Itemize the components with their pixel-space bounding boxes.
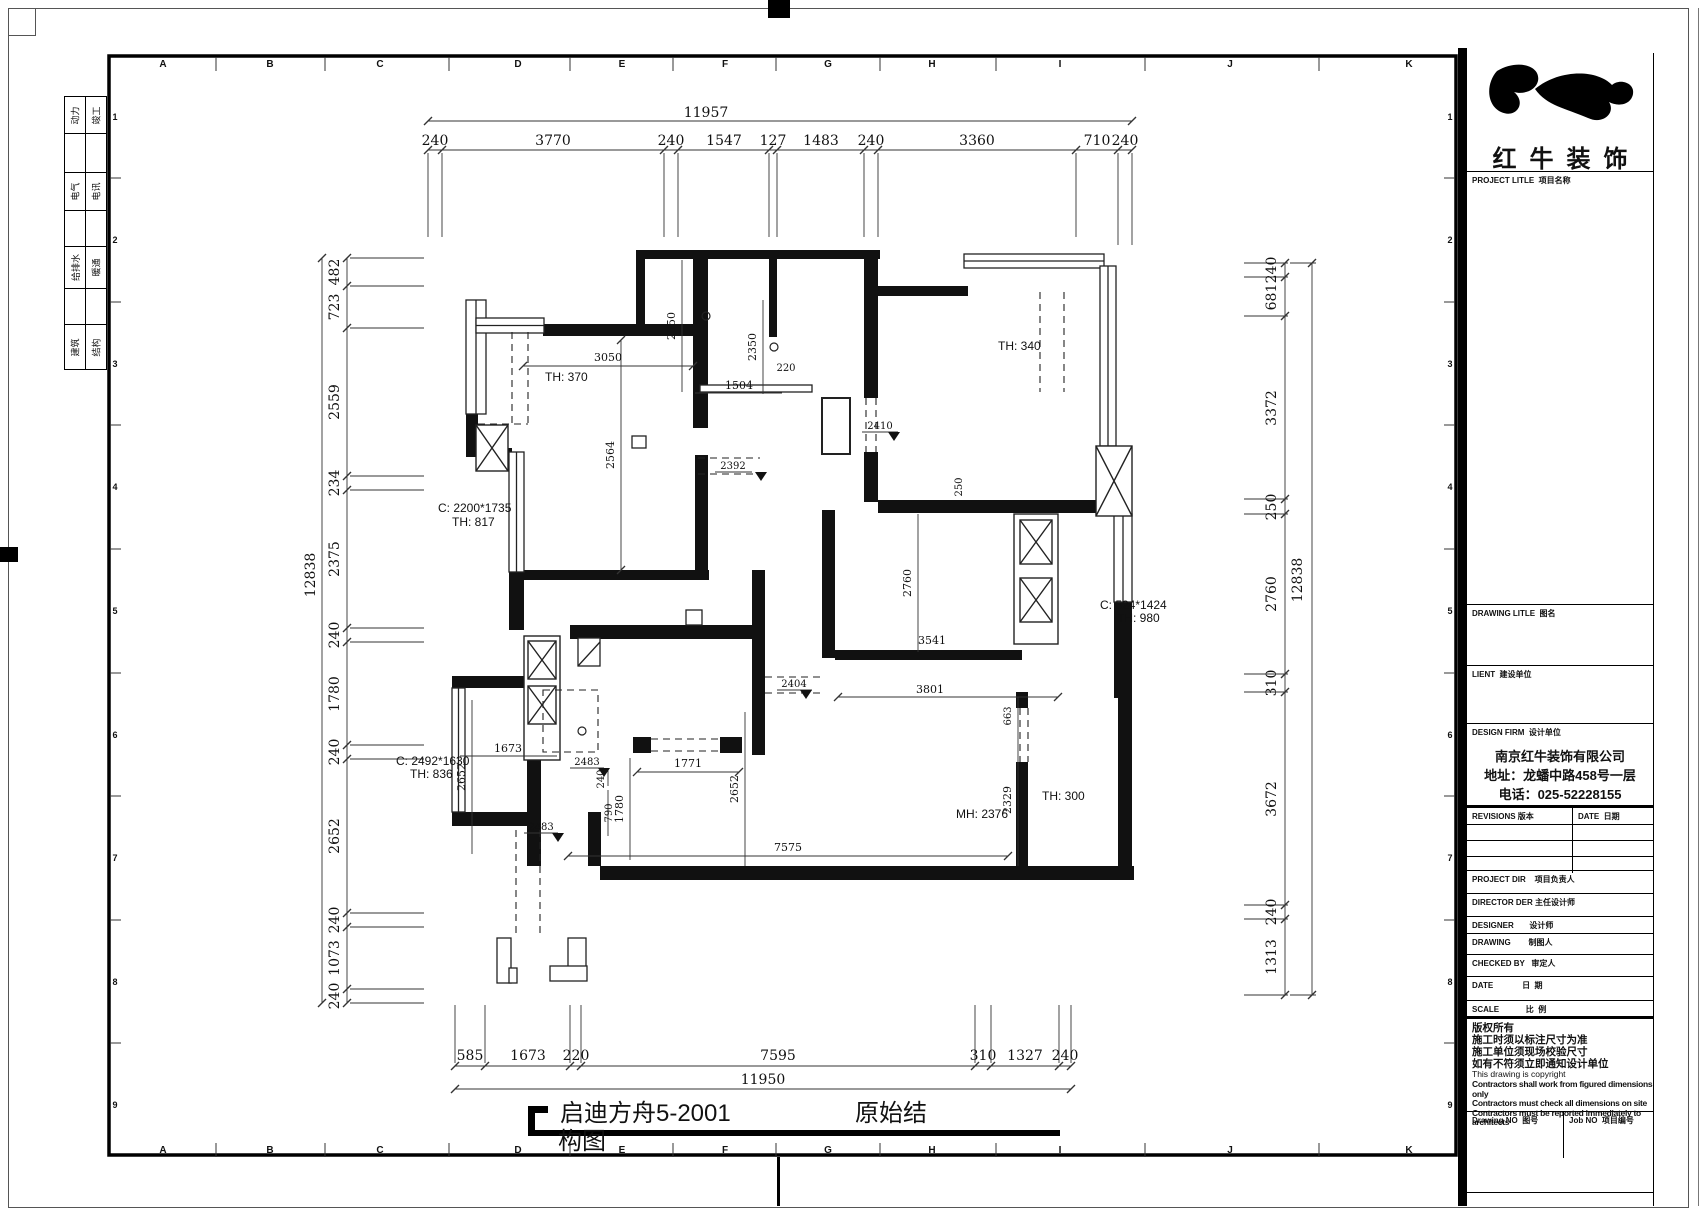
dim-total-top: 11957 — [684, 105, 729, 121]
grid-number: 7 — [112, 853, 117, 863]
dim: 710 — [1084, 133, 1111, 149]
design-firm-box: DESIGN FIRM 设计单位 南京红牛装饰有限公司 地址：龙蟠中路458号一… — [1467, 724, 1653, 806]
grid-letter: G — [824, 1145, 832, 1156]
stamp-label: 结构 — [89, 338, 102, 356]
grid-letter: A — [159, 59, 166, 70]
stamp-cell: 电讯 — [86, 173, 106, 210]
grid-number: 6 — [1447, 730, 1452, 740]
label-c2200: C: 2200*1735 — [438, 501, 512, 515]
grid-number: 7 — [1447, 853, 1452, 863]
plan-title-wrap: 构图 — [558, 1128, 606, 1155]
dim: 1673 — [494, 742, 522, 755]
dim: 2410 — [867, 421, 892, 432]
label-th370: TH: 370 — [545, 370, 588, 384]
interior-dim-lines — [460, 260, 1062, 866]
stamp-row: 电气 电讯 — [65, 173, 106, 211]
dim: 1771 — [674, 757, 702, 770]
grid-number: 1 — [112, 112, 117, 122]
grid-number: 2 — [1447, 235, 1452, 245]
dim: 2483 — [574, 757, 599, 768]
dim: 240 — [1264, 257, 1280, 284]
stamp-row-empty — [65, 134, 106, 173]
revisions-table: REVISIONS 版本 DATE 日期 — [1467, 806, 1653, 871]
dim: 240 — [327, 983, 343, 1010]
grid-number: 5 — [1447, 606, 1452, 616]
dim: 681 — [1264, 284, 1280, 311]
dim: 3770 — [535, 133, 571, 149]
revision-row-empty — [1467, 825, 1653, 841]
label-th836: TH: 836 — [410, 767, 453, 781]
grid-letter: H — [928, 1145, 935, 1156]
scale-row-label: SCALE 比 例 — [1467, 1001, 1653, 1015]
dim: 2652 — [327, 818, 343, 854]
grid-letter: B — [266, 1145, 273, 1156]
grid-letter: D — [514, 1145, 521, 1156]
grid-letter: J — [1227, 1145, 1233, 1156]
corner-registration-box — [8, 8, 36, 36]
drawing-title-box: DRAWING LITLE 图名 — [1467, 605, 1653, 666]
brand-name: 红牛装饰 — [1467, 139, 1653, 174]
dim: 3372 — [1264, 390, 1280, 426]
dim: 1504 — [725, 379, 753, 392]
dim: 663 — [1003, 706, 1014, 725]
stamp-cell — [65, 134, 86, 172]
stamp-label: 动力 — [68, 106, 81, 124]
grid-letter: E — [619, 59, 626, 70]
grid-letter: F — [722, 59, 728, 70]
stamp-cell — [86, 289, 106, 324]
dim: 790 — [604, 803, 615, 822]
dim: 127 — [760, 133, 787, 149]
grid-letter: D — [514, 59, 521, 70]
grid-numbers-left: 1 2 3 4 5 6 7 8 9 — [112, 112, 117, 1110]
job-no-label: Job NO 项目编号 — [1564, 1112, 1638, 1126]
drawing-frame — [109, 56, 1456, 1155]
director-row: DIRECTOR DER 主任设计师 — [1467, 894, 1653, 917]
dimension-text-top: 11957 240 3770 240 1547 127 1483 240 336… — [422, 105, 1139, 149]
grid-letter: E — [619, 1145, 626, 1156]
stamp-cell: 建筑 — [65, 325, 86, 369]
grid-letter: J — [1227, 59, 1233, 70]
project-dir-label: PROJECT DIR 项目负责人 — [1467, 871, 1653, 885]
dim: 2404 — [781, 679, 806, 690]
scale-row: SCALE 比 例 — [1467, 1001, 1653, 1017]
label-th980: TH: 980 — [1117, 611, 1160, 625]
drawing-by-label: DRAWING 制图人 — [1467, 934, 1653, 948]
revisions-label: REVISIONS 版本 — [1467, 808, 1538, 822]
grid-number: 4 — [112, 482, 117, 492]
dim: 240 — [596, 769, 607, 788]
dim: 2350 — [746, 333, 759, 361]
dim: 1327 — [1007, 1048, 1043, 1064]
stamp-cell — [86, 134, 106, 172]
grid-letter: K — [1405, 1145, 1413, 1156]
grid-letter: H — [928, 59, 935, 70]
grid-letter: I — [1059, 1145, 1062, 1156]
designer-label: DESIGNER 设计师 — [1467, 917, 1653, 931]
checked-by-row: CHECKED BY 审定人 — [1467, 955, 1653, 977]
dim-total-right: 12838 — [1290, 558, 1306, 603]
dim: 240 — [422, 133, 449, 149]
door-circles — [578, 312, 778, 735]
grid-letter: B — [266, 59, 273, 70]
project-dir-row: PROJECT DIR 项目负责人 — [1467, 871, 1653, 894]
stamp-label: 建筑 — [68, 338, 81, 356]
title-block: 红牛装饰 PROJECT LITLE 项目名称 DRAWING LITLE 图名… — [1467, 53, 1654, 1158]
dimension-text-left: 482 723 2559 234 2375 240 1780 240 2652 … — [303, 259, 343, 1010]
grid-number: 3 — [1447, 359, 1452, 369]
stamp-cell: 暖通 — [86, 247, 106, 288]
grid-letter: F — [722, 1145, 728, 1156]
dim: 310 — [1264, 670, 1280, 697]
drawing-number-box: Drawing NO 图号 Job NO 项目编号 — [1467, 1112, 1653, 1158]
label-th340: TH: 340 — [998, 339, 1041, 353]
firm-name: 南京红牛装饰有限公司 — [1467, 748, 1653, 767]
dim: 2652 — [728, 775, 741, 803]
dim: 240 — [1052, 1048, 1079, 1064]
registration-mark-bottom — [777, 1157, 780, 1206]
date-col-label: DATE 日期 — [1573, 808, 1624, 822]
client-box: LIENT 建设单位 — [1467, 666, 1653, 724]
drawing-by-row: DRAWING 制图人 — [1467, 934, 1653, 955]
note-line: 施工时须以标注尺寸为准 — [1472, 1035, 1653, 1047]
stamp-label: 电讯 — [89, 183, 102, 201]
grid-number: 2 — [112, 235, 117, 245]
client-label: LIENT 建设单位 — [1467, 666, 1653, 680]
firm-phone: 电话：025-52228155 — [1467, 786, 1653, 805]
cad-floor-plan-page: { "stamps": { "rows": [ {"a": "动力", "b":… — [0, 0, 1708, 1214]
dim: 310 — [970, 1048, 997, 1064]
firm-address: 地址：龙蟠中路458号一层 — [1467, 767, 1653, 786]
dim: 7595 — [760, 1048, 796, 1064]
dim: 1780 — [327, 676, 343, 712]
note-line: Contractors shall work from figured dime… — [1472, 1080, 1653, 1099]
dim: 1073 — [327, 940, 343, 976]
grid-letter: K — [1405, 59, 1413, 70]
grid-number: 3 — [112, 359, 117, 369]
grid-number: 8 — [1447, 977, 1452, 987]
dim: 482 — [327, 259, 343, 286]
label-th817: TH: 817 — [452, 515, 495, 529]
checked-by-label: CHECKED BY 审定人 — [1467, 955, 1653, 969]
dim: 240 — [658, 133, 685, 149]
dim: 723 — [327, 294, 343, 321]
stamp-label: 电气 — [68, 183, 81, 201]
stamp-cell: 电气 — [65, 173, 86, 210]
stamp-row: 建筑 结构 — [65, 325, 106, 369]
stamp-row-empty — [65, 211, 106, 246]
copyright-notes-box: 版权所有 施工时须以标注尺寸为准 施工单位须现场校验尺寸 如有不符须立即通知设计… — [1467, 1017, 1653, 1112]
dim: 2559 — [327, 384, 343, 420]
dim: 240 — [327, 622, 343, 649]
dim: 250 — [1264, 494, 1280, 521]
dim: 7575 — [774, 841, 802, 854]
titleblock-footer-row2 — [1467, 1192, 1654, 1206]
grid-number: 8 — [112, 977, 117, 987]
date-row-label: DATE 日 期 — [1467, 977, 1653, 991]
dim: 220 — [776, 363, 795, 374]
director-label: DIRECTOR DER 主任设计师 — [1467, 894, 1653, 908]
plan-title-name: 启迪方舟5-2001 — [560, 1100, 731, 1127]
dim: 3801 — [916, 683, 944, 696]
dim-total-bottom: 11950 — [741, 1072, 786, 1088]
revisions-header: REVISIONS 版本 DATE 日期 — [1467, 808, 1653, 825]
dim: 2564 — [604, 441, 617, 469]
dim: 2392 — [720, 461, 745, 472]
project-title-label: PROJECT LITLE 项目名称 — [1467, 172, 1653, 186]
titleblock-footer-row — [1467, 1158, 1654, 1193]
stamp-row: 给排水 暖通 — [65, 247, 106, 289]
grid-letter: A — [159, 1145, 166, 1156]
dim: 585 — [457, 1048, 484, 1064]
grid-number: 6 — [112, 730, 117, 740]
dim: 2760 — [901, 569, 914, 597]
stamp-cell — [86, 211, 106, 245]
grid-letter: C — [376, 1145, 383, 1156]
dim: 1483 — [803, 133, 839, 149]
column-x-boxes — [476, 425, 1132, 760]
dim: 3672 — [1264, 781, 1280, 817]
page-edge-line — [1698, 8, 1699, 1206]
dim: 2760 — [1264, 576, 1280, 612]
design-firm-label: DESIGN FIRM 设计单位 — [1467, 724, 1653, 738]
stamp-row-empty — [65, 289, 106, 325]
grid-letters-top: A B C D E F G H I J K — [159, 59, 1413, 70]
date-row: DATE 日 期 — [1467, 977, 1653, 1001]
plan-title-suffix: 原始结 — [855, 1100, 927, 1127]
dim: 220 — [563, 1048, 590, 1064]
grid-letter: I — [1059, 59, 1062, 70]
dim: 2375 — [327, 541, 343, 577]
stamp-cell — [65, 211, 86, 245]
dim: 1313 — [1264, 939, 1280, 975]
dim: 2483 — [528, 822, 553, 833]
stamp-cell — [65, 289, 86, 324]
label-c2492: C: 2492*1630 — [396, 754, 470, 768]
logo-box: 红牛装饰 — [1467, 53, 1653, 172]
designer-row: DESIGNER 设计师 — [1467, 917, 1653, 934]
grid-number: 9 — [112, 1100, 117, 1110]
dim: 240 — [327, 739, 343, 766]
grid-number: 9 — [1447, 1100, 1452, 1110]
floor-plan-drawing: A B C D E F G H I J K A B C D E F G H I … — [105, 53, 1467, 1158]
stamp-label: 给排水 — [69, 254, 82, 281]
stamp-cell: 结构 — [86, 325, 106, 369]
dim: 250 — [954, 477, 965, 496]
dim: 240 — [858, 133, 885, 149]
grid-number: 4 — [1447, 482, 1452, 492]
stamp-label: 暖通 — [89, 258, 102, 276]
redniu-logo-icon — [1467, 57, 1653, 135]
stamp-cell: 竣工 — [86, 97, 106, 133]
dimension-text-bottom: 585 1673 220 7595 310 1327 240 11950 — [457, 1048, 1079, 1088]
dim: 2350 — [665, 312, 678, 340]
registration-mark-top — [768, 0, 790, 18]
stamp-cell: 给排水 — [65, 247, 86, 288]
label-mh2376: MH: 2376 — [956, 807, 1008, 821]
dim-total-left: 12838 — [303, 553, 319, 598]
label-th300: TH: 300 — [1042, 789, 1085, 803]
drawing-title-label: DRAWING LITLE 图名 — [1467, 605, 1653, 619]
grid-letter: C — [376, 59, 383, 70]
stamp-row: 动力 竣工 — [65, 97, 106, 134]
grid-ticks — [110, 57, 1455, 1157]
grid-numbers-right: 1 2 3 4 5 6 7 8 9 — [1447, 112, 1452, 1110]
grid-letter: G — [824, 59, 832, 70]
dim: 3360 — [959, 133, 995, 149]
drawing-title-group: 启迪方舟5-2001 原始结 构图 — [528, 1100, 1060, 1155]
dim: 1673 — [510, 1048, 546, 1064]
dim: 3541 — [918, 634, 946, 647]
dim: 240 — [327, 907, 343, 934]
stamp-cell: 动力 — [65, 97, 86, 133]
dim: 1547 — [706, 133, 742, 149]
registration-mark-left — [0, 547, 18, 562]
revision-row-empty — [1467, 841, 1653, 857]
dim: 240 — [1112, 133, 1139, 149]
label-c524: C: 524*1424 — [1100, 598, 1167, 612]
dim: 234 — [327, 470, 343, 497]
grid-number: 5 — [112, 606, 117, 616]
drawing-no-label: Drawing NO 图号 — [1467, 1112, 1542, 1126]
note-line: 施工单位须现场校验尺寸 — [1472, 1047, 1653, 1059]
grid-number: 1 — [1447, 112, 1452, 122]
discipline-stamp-table: 动力 竣工 电气 电讯 给排水 暖通 建筑 结构 — [64, 96, 107, 370]
dim: 3050 — [594, 351, 622, 364]
dim: 240 — [1264, 899, 1280, 926]
stamp-label: 竣工 — [89, 106, 102, 124]
project-title-box: PROJECT LITLE 项目名称 — [1467, 172, 1653, 605]
